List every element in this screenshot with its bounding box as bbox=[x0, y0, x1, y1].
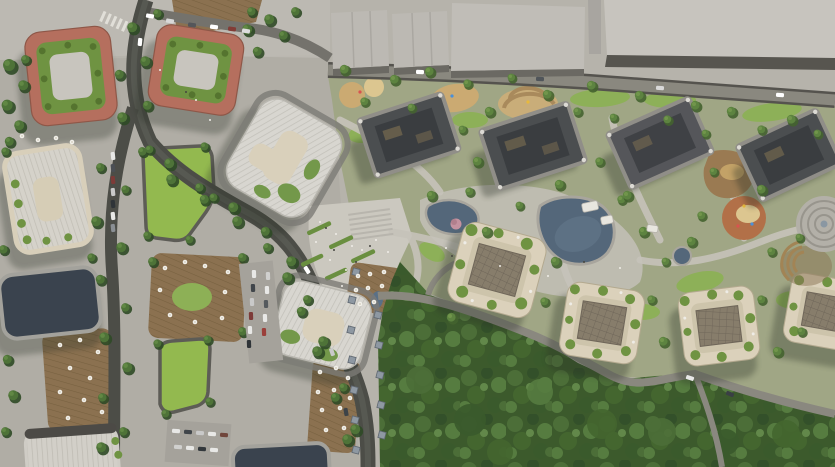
aerial-render-canvas bbox=[0, 0, 835, 467]
warehouse-1 bbox=[331, 10, 389, 69]
ribbed-building-4 bbox=[24, 423, 124, 467]
masterplan-scene bbox=[0, 0, 835, 467]
playground-1 bbox=[339, 82, 365, 108]
parking-lot-south bbox=[165, 420, 232, 466]
navy-roof-2 bbox=[232, 443, 330, 467]
warehouse-strip bbox=[588, 0, 601, 54]
ribbed-building-3 bbox=[0, 144, 96, 272]
warehouse-2 bbox=[392, 11, 449, 68]
pond-3 bbox=[673, 247, 691, 265]
lawn-2 bbox=[160, 339, 210, 412]
warehouse-3 bbox=[451, 3, 585, 71]
navy-roof-1 bbox=[0, 266, 104, 358]
courtyard-block-3 bbox=[666, 285, 764, 387]
warehouse-4 bbox=[604, 0, 835, 58]
